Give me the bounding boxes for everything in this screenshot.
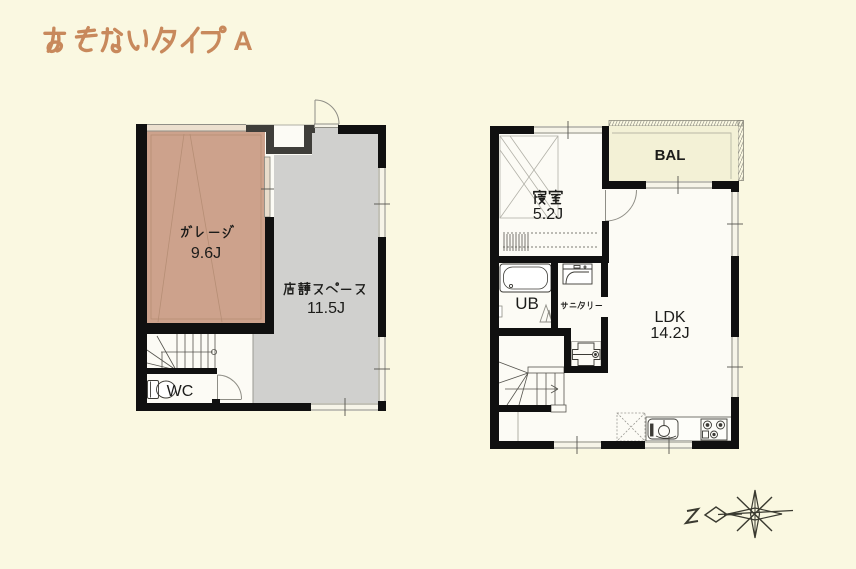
svg-text:LDK: LDK (654, 309, 685, 326)
svg-text:UB: UB (515, 294, 539, 313)
svg-text:WC: WC (167, 383, 194, 400)
svg-text:11.5J: 11.5J (307, 300, 345, 317)
svg-text:9.6J: 9.6J (191, 245, 221, 262)
svg-text:BAL: BAL (655, 147, 686, 164)
svg-text:5.2J: 5.2J (533, 206, 563, 223)
svg-text:A: A (233, 26, 253, 56)
svg-text:14.2J: 14.2J (650, 325, 689, 342)
